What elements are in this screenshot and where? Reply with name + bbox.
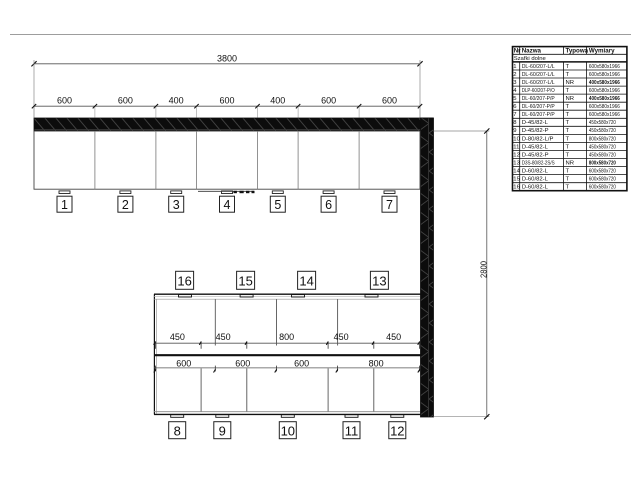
svg-text:15: 15 — [238, 274, 252, 289]
svg-text:600x580x1966: 600x580x1966 — [589, 112, 621, 118]
svg-text:7: 7 — [386, 198, 393, 212]
svg-text:D-60/82-L: D-60/82-L — [522, 177, 549, 183]
svg-text:D3S-80/82-2S/S: D3S-80/82-2S/S — [522, 160, 555, 166]
svg-text:800: 800 — [369, 358, 384, 368]
svg-text:600x580x720: 600x580x720 — [589, 185, 617, 191]
svg-text:800x580x720: 800x580x720 — [589, 136, 617, 142]
svg-text:T: T — [566, 88, 570, 94]
svg-text:600x580x720: 600x580x720 — [589, 177, 617, 183]
svg-text:NR: NR — [566, 160, 575, 166]
svg-text:400: 400 — [270, 95, 285, 105]
svg-text:DL-60/207-L/L: DL-60/207-L/L — [522, 80, 556, 86]
svg-text:10: 10 — [281, 423, 295, 438]
svg-text:DL-60/207-P/P: DL-60/207-P/P — [522, 112, 555, 118]
svg-text:D-80/82-L/P: D-80/82-L/P — [522, 136, 554, 142]
svg-text:450: 450 — [216, 332, 231, 342]
svg-text:3800: 3800 — [217, 54, 237, 64]
svg-text:450x580x720: 450x580x720 — [589, 152, 617, 158]
svg-text:T: T — [566, 144, 570, 150]
svg-text:600: 600 — [321, 95, 336, 105]
svg-text:11: 11 — [345, 423, 359, 438]
svg-text:450x580x720: 450x580x720 — [589, 144, 617, 150]
svg-text:400: 400 — [169, 95, 184, 105]
svg-text:600: 600 — [235, 358, 250, 368]
svg-text:600x580x1966: 600x580x1966 — [589, 88, 621, 94]
svg-text:T: T — [566, 128, 570, 134]
svg-text:400x580x1966: 400x580x1966 — [589, 80, 621, 86]
svg-text:450: 450 — [334, 332, 349, 342]
svg-text:600x580x1966: 600x580x1966 — [589, 72, 621, 78]
svg-text:11: 11 — [513, 144, 519, 150]
svg-text:600: 600 — [219, 95, 234, 105]
svg-text:DL-60/207-P/P: DL-60/207-P/P — [522, 104, 555, 110]
svg-text:1: 1 — [61, 198, 68, 212]
svg-text:600: 600 — [176, 358, 191, 368]
svg-text:1: 1 — [513, 64, 516, 70]
svg-text:D-45/82-P: D-45/82-P — [522, 128, 549, 134]
svg-text:NR: NR — [566, 80, 575, 86]
svg-text:Typowa: Typowa — [566, 48, 589, 55]
svg-text:800x580x720: 800x580x720 — [589, 160, 617, 166]
svg-text:Nazwa: Nazwa — [522, 48, 542, 55]
svg-text:T: T — [566, 104, 570, 110]
svg-text:2: 2 — [513, 72, 516, 78]
svg-text:450x580x720: 450x580x720 — [589, 120, 617, 126]
svg-text:2800: 2800 — [478, 261, 488, 278]
svg-text:DL-60/207-L/L: DL-60/207-L/L — [522, 72, 556, 78]
svg-text:14: 14 — [299, 274, 313, 289]
svg-text:16: 16 — [177, 274, 191, 289]
svg-text:T: T — [566, 152, 570, 158]
svg-text:D-60/82-L: D-60/82-L — [522, 169, 549, 175]
svg-text:9: 9 — [219, 423, 226, 438]
svg-text:2: 2 — [122, 198, 129, 212]
svg-text:T: T — [566, 136, 570, 142]
svg-text:D-45/82-P: D-45/82-P — [522, 152, 549, 158]
svg-text:D-45/82-L: D-45/82-L — [522, 120, 549, 126]
svg-text:9: 9 — [513, 128, 516, 134]
svg-text:600: 600 — [57, 95, 72, 105]
svg-text:NR: NR — [566, 96, 575, 102]
svg-text:T: T — [566, 177, 570, 183]
svg-text:Wymiary: Wymiary — [589, 48, 615, 55]
svg-text:5: 5 — [274, 198, 281, 212]
svg-text:DL-60/207-P/P: DL-60/207-P/P — [522, 96, 555, 102]
svg-text:DLP-60/207-P/O: DLP-60/207-P/O — [522, 88, 555, 94]
svg-text:T: T — [566, 185, 570, 191]
svg-text:T: T — [566, 112, 570, 118]
svg-text:12: 12 — [390, 423, 404, 438]
svg-text:400x580x1966: 400x580x1966 — [589, 96, 621, 102]
svg-text:T: T — [566, 120, 570, 126]
svg-text:450: 450 — [170, 332, 185, 342]
svg-text:3: 3 — [173, 198, 180, 212]
svg-text:800: 800 — [279, 332, 294, 342]
svg-text:600: 600 — [382, 95, 397, 105]
svg-text:600x580x1966: 600x580x1966 — [589, 64, 621, 70]
svg-text:DL-60/207-L/L: DL-60/207-L/L — [522, 64, 556, 70]
svg-text:4: 4 — [224, 198, 231, 212]
svg-text:13: 13 — [372, 274, 386, 289]
svg-text:7: 7 — [513, 112, 516, 118]
svg-text:T: T — [566, 64, 570, 70]
svg-text:D-60/82-L: D-60/82-L — [522, 185, 549, 191]
svg-text:600x580x1966: 600x580x1966 — [589, 104, 621, 110]
svg-text:450x580x720: 450x580x720 — [589, 128, 617, 134]
svg-text:T: T — [566, 72, 570, 78]
svg-text:600: 600 — [118, 95, 133, 105]
svg-text:450: 450 — [386, 332, 401, 342]
svg-text:600x580x720: 600x580x720 — [589, 169, 617, 175]
svg-text:600: 600 — [294, 358, 309, 368]
svg-text:8: 8 — [174, 423, 181, 438]
svg-text:T: T — [566, 169, 570, 175]
svg-text:12: 12 — [513, 152, 520, 158]
svg-text:D-45/82-L: D-45/82-L — [522, 144, 549, 150]
svg-text:6: 6 — [325, 198, 332, 212]
